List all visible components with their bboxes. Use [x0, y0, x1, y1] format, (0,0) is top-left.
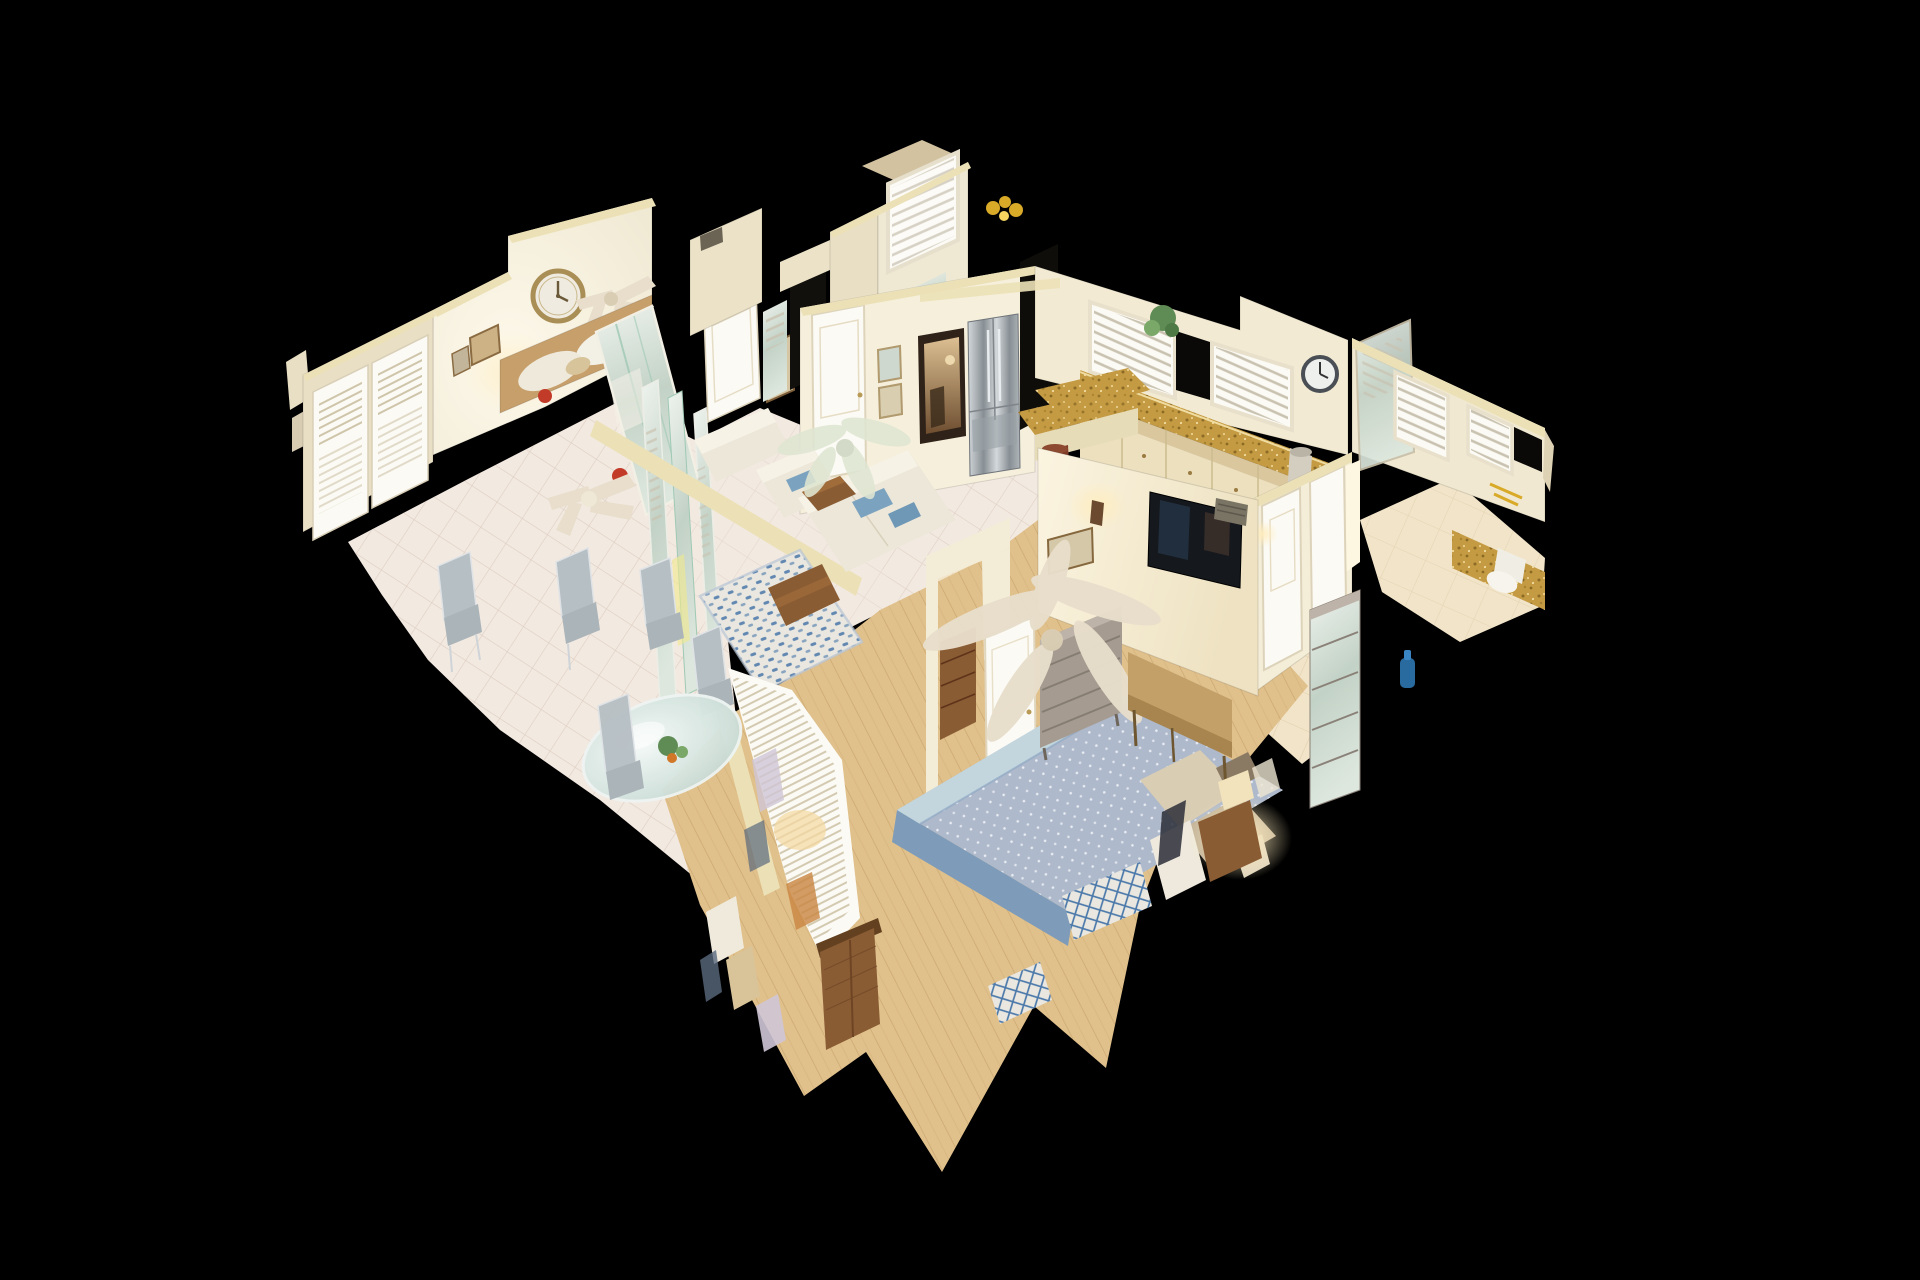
doorway-jamb — [926, 578, 938, 803]
dollhouse-viewer[interactable] — [0, 0, 1920, 1280]
ornate-framed-mirror — [918, 328, 966, 444]
stainless-french-door-refrigerator — [968, 314, 1020, 476]
louvered-closet-door — [313, 365, 368, 540]
gold-rim-wall-clock — [533, 271, 583, 321]
wall-sconce — [1090, 500, 1104, 526]
lit-door-opening — [1346, 460, 1360, 572]
tall-gray-cabinet — [1310, 590, 1360, 808]
dollhouse-3d-render — [0, 0, 1920, 1280]
louvered-closet-door — [372, 335, 428, 508]
red-cardinal-ornament — [538, 389, 552, 403]
kitchen-wall-clock — [1303, 357, 1337, 391]
framed-beach-art — [878, 346, 901, 382]
hallway-door — [1310, 466, 1346, 620]
framed-beach-art — [879, 384, 902, 418]
window-gap — [1176, 331, 1210, 400]
hallway-door — [1262, 488, 1302, 670]
